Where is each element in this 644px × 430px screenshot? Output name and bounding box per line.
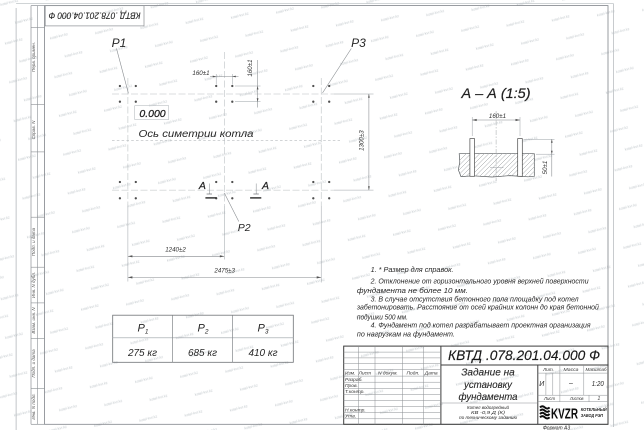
svg-text:2475±3: 2475±3 — [213, 268, 235, 275]
svg-text:1240±2: 1240±2 — [165, 246, 186, 253]
svg-text:КВТД .078.201.04.000 Ф: КВТД .078.201.04.000 Ф — [48, 9, 140, 20]
svg-text:Подп. и дата: Подп. и дата — [31, 349, 36, 378]
svg-text:1. * Размер для справок.: 1. * Размер для справок. — [371, 266, 454, 274]
svg-text:–: – — [568, 380, 573, 387]
svg-text:2. Отклонение от горизонтально: 2. Отклонение от горизонтального уровня … — [370, 277, 589, 285]
svg-text:КВ -0,9 Д (К): КВ -0,9 Д (К) — [471, 410, 505, 416]
svg-text:фундамента: фундамента — [459, 391, 518, 403]
svg-text:по нагрузкам на фундамент.: по нагрузкам на фундамент. — [357, 331, 455, 339]
svg-text:КОТЕЛЬНЫЙ: КОТЕЛЬНЫЙ — [581, 405, 608, 412]
svg-text:Дата: Дата — [424, 371, 438, 377]
svg-text:160±1: 160±1 — [489, 113, 506, 120]
svg-text:50±1: 50±1 — [542, 161, 549, 175]
svg-text:Подп. и дата: Подп. и дата — [31, 227, 36, 256]
svg-text:N докум.: N докум. — [378, 371, 398, 377]
svg-text:P1: P1 — [112, 36, 127, 50]
svg-text:Инв. N подл.: Инв. N подл. — [31, 393, 36, 419]
svg-text:P2: P2 — [238, 222, 251, 234]
svg-text:забетонировать. Расстояние от: забетонировать. Расстояние от осей крайн… — [356, 304, 599, 312]
svg-text:Изм.: Изм. — [345, 371, 355, 377]
svg-text:KVZR: KVZR — [551, 407, 578, 423]
svg-text:Т.контр.: Т.контр. — [345, 389, 365, 395]
svg-text:160±1: 160±1 — [192, 70, 209, 77]
svg-text:ЗАВОД РЭП: ЗАВОД РЭП — [581, 413, 604, 418]
svg-text:фундамента не более 10 мм.: фундамента не более 10 мм. — [357, 287, 468, 295]
svg-text:1300±3: 1300±3 — [359, 130, 366, 151]
svg-text:1: 1 — [598, 396, 601, 402]
svg-text:Справ. N: Справ. N — [31, 120, 36, 140]
svg-text:А – А (1:5): А – А (1:5) — [460, 85, 530, 101]
svg-text:Котел водогрейный: Котел водогрейный — [467, 404, 509, 411]
svg-text:установку: установку — [463, 380, 513, 391]
svg-text:Формат А3: Формат А3 — [543, 426, 571, 430]
svg-text:160±1: 160±1 — [247, 59, 254, 76]
svg-text:по техническому заданию: по техническому заданию — [459, 415, 517, 421]
svg-text:Взам. инв. N: Взам. инв. N — [31, 307, 36, 334]
svg-text:Перв. примен.: Перв. примен. — [31, 42, 36, 72]
svg-text:P3: P3 — [351, 36, 366, 50]
svg-text:Ось симетрии котла: Ось симетрии котла — [139, 129, 254, 140]
svg-text:A: A — [261, 180, 269, 192]
svg-text:685 кг: 685 кг — [188, 348, 217, 359]
svg-text:275 кг: 275 кг — [127, 348, 157, 359]
svg-text:Пров.: Пров. — [345, 383, 358, 389]
svg-text:Масштаб: Масштаб — [586, 367, 607, 372]
svg-text:Лит.: Лит. — [542, 367, 554, 372]
svg-text:410 кг: 410 кг — [248, 348, 277, 359]
svg-text:Лист: Лист — [543, 396, 555, 401]
svg-text:Утв.: Утв. — [345, 414, 356, 420]
svg-text:КВТД .078.201.04.000 Ф: КВТД .078.201.04.000 Ф — [448, 347, 600, 363]
svg-text:Масса: Масса — [564, 367, 579, 372]
svg-text:1:20: 1:20 — [592, 381, 604, 388]
svg-text:Листов: Листов — [569, 396, 584, 401]
svg-text:подушки 500 мм.: подушки 500 мм. — [357, 313, 408, 321]
svg-text:Н.контр.: Н.контр. — [345, 408, 366, 414]
svg-text:Задание на: Задание на — [461, 367, 515, 378]
svg-text:Инв. N дубл.: Инв. N дубл. — [31, 272, 36, 298]
svg-text:3. В случае отсутствия бетонно: 3. В случае отсутствия бетонного пола пл… — [371, 295, 579, 303]
svg-text:0.000: 0.000 — [139, 108, 165, 120]
svg-text:Разраб.: Разраб. — [345, 377, 363, 383]
svg-text:4. Фундамент под котел разраба: 4. Фундамент под котел разрабатывает про… — [371, 321, 591, 329]
svg-text:A: A — [198, 180, 206, 192]
svg-text:Подп.: Подп. — [407, 371, 420, 377]
svg-text:Лист: Лист — [358, 371, 372, 377]
